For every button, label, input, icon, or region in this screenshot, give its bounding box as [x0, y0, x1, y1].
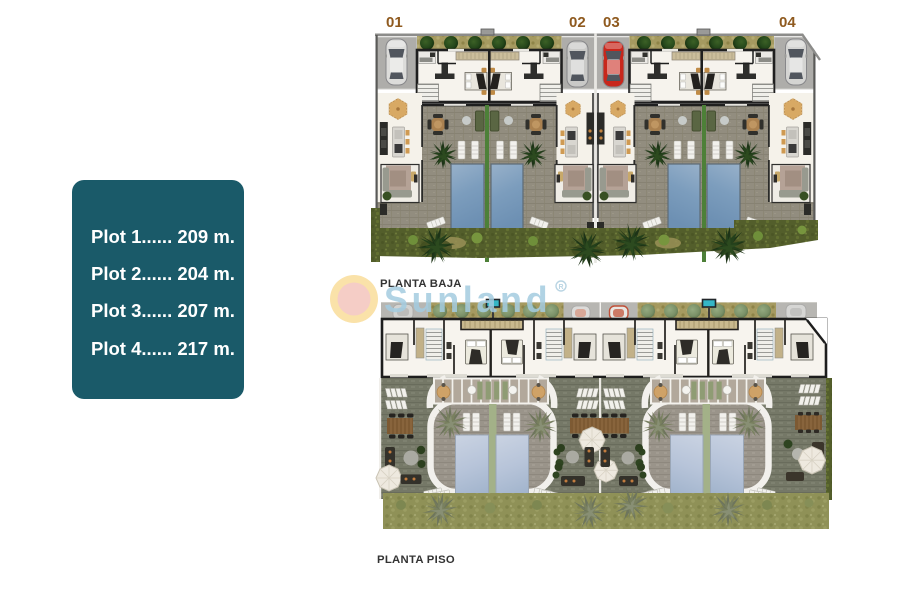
svg-text:Plot 2...... 204 m.: Plot 2...... 204 m.	[91, 263, 235, 284]
svg-text:04: 04	[779, 14, 796, 31]
svg-text:Plot 1...... 209 m.: Plot 1...... 209 m.	[91, 226, 235, 247]
svg-text:PLANTA PISO: PLANTA PISO	[377, 554, 455, 566]
svg-text:R: R	[559, 284, 564, 291]
svg-text:Sunland: Sunland	[384, 279, 551, 320]
svg-text:02: 02	[569, 14, 586, 31]
svg-text:Plot 3...... 207 m.: Plot 3...... 207 m.	[91, 300, 235, 321]
svg-text:Plot 4...... 217 m.: Plot 4...... 217 m.	[91, 338, 235, 359]
svg-text:03: 03	[603, 14, 620, 31]
svg-text:01: 01	[386, 14, 403, 31]
